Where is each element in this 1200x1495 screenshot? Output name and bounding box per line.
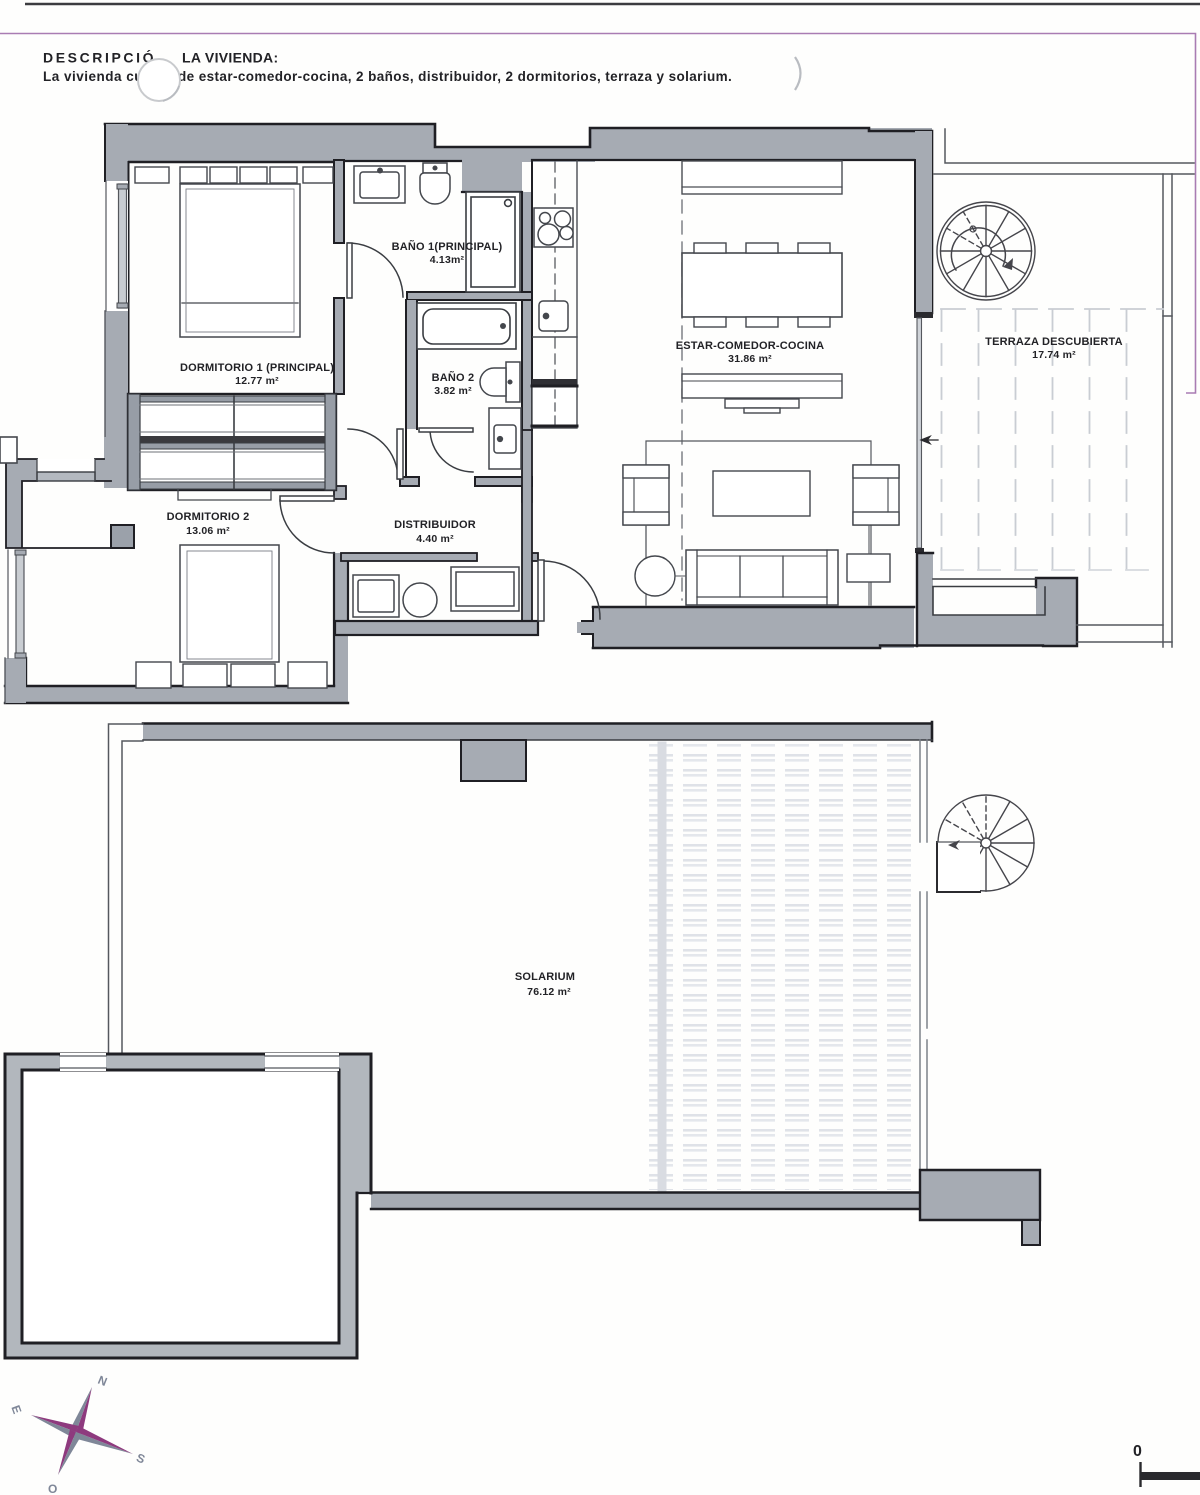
svg-text:13.06 m²: 13.06 m² bbox=[186, 525, 230, 537]
svg-text:TERRAZA DESCUBIERTA: TERRAZA DESCUBIERTA bbox=[985, 336, 1123, 348]
svg-text:DORMITORIO 1 (PRINCIPAL): DORMITORIO 1 (PRINCIPAL) bbox=[180, 362, 334, 374]
svg-text:0: 0 bbox=[1133, 1443, 1142, 1460]
svg-text:76.12 m²: 76.12 m² bbox=[527, 986, 571, 998]
svg-text:LA VIVIENDA:: LA VIVIENDA: bbox=[182, 50, 278, 66]
svg-text:DORMITORIO 2: DORMITORIO 2 bbox=[167, 511, 250, 523]
svg-text:3.82 m²: 3.82 m² bbox=[434, 385, 472, 397]
svg-text:de estar-comedor-cocina, 2 bañ: de estar-comedor-cocina, 2 baños, distri… bbox=[178, 69, 732, 84]
svg-text:4.13m²: 4.13m² bbox=[430, 254, 465, 266]
svg-text:O: O bbox=[48, 1482, 57, 1495]
svg-text:4.40 m²: 4.40 m² bbox=[416, 533, 454, 545]
svg-text:N: N bbox=[96, 1373, 109, 1389]
svg-text:E: E bbox=[8, 1403, 24, 1415]
svg-text:BAÑO 1(PRINCIPAL): BAÑO 1(PRINCIPAL) bbox=[392, 240, 503, 253]
svg-text:La vivienda cu: La vivienda cu bbox=[43, 69, 143, 84]
svg-text:DESCRIPCIÓ: DESCRIPCIÓ bbox=[43, 49, 156, 66]
svg-text:SOLARIUM: SOLARIUM bbox=[515, 971, 575, 983]
svg-text:31.86 m²: 31.86 m² bbox=[728, 353, 772, 365]
svg-text:S: S bbox=[134, 1451, 147, 1467]
svg-text:BAÑO 2: BAÑO 2 bbox=[432, 371, 475, 384]
svg-text:17.74 m²: 17.74 m² bbox=[1032, 349, 1076, 361]
svg-text:ESTAR-COMEDOR-COCINA: ESTAR-COMEDOR-COCINA bbox=[676, 340, 825, 352]
svg-text:DISTRIBUIDOR: DISTRIBUIDOR bbox=[394, 519, 476, 531]
svg-text:12.77 m²: 12.77 m² bbox=[235, 375, 279, 387]
